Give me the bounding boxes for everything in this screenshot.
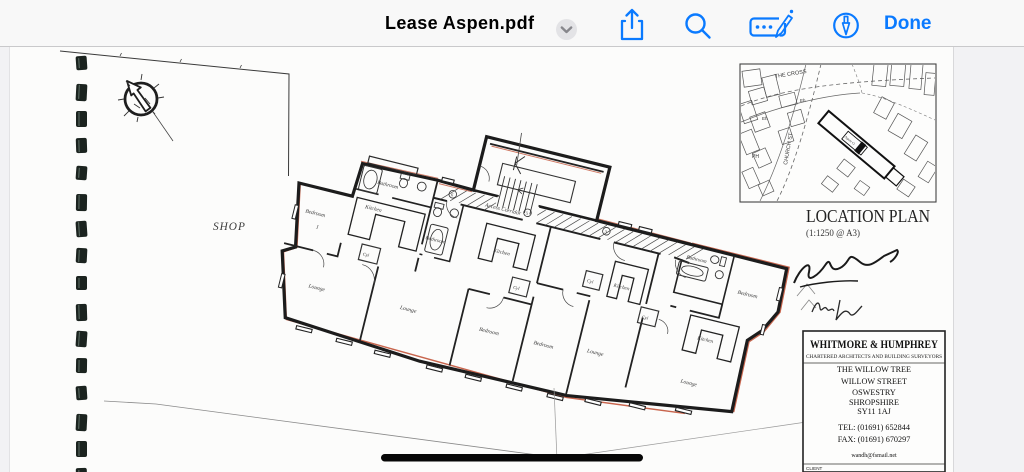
svg-text:wandh@fsmail.net: wandh@fsmail.net	[851, 452, 897, 459]
svg-text:Kitchen: Kitchen	[612, 282, 630, 292]
svg-text:WILLOW STREET: WILLOW STREET	[841, 377, 907, 386]
svg-text:WHITMORE & HUMPHREY: WHITMORE & HUMPHREY	[810, 339, 939, 351]
svg-text:SHOP: SHOP	[213, 221, 246, 233]
svg-text:Cyl: Cyl	[513, 285, 521, 292]
svg-text:Eh: Eh	[800, 98, 806, 103]
svg-text:(1:1250 @ A3): (1:1250 @ A3)	[806, 228, 860, 239]
svg-text:Cyl: Cyl	[586, 278, 594, 285]
svg-text:THE WILLOW TREE: THE WILLOW TREE	[837, 365, 911, 374]
svg-text:Bedroom: Bedroom	[737, 290, 758, 301]
svg-text:PH: PH	[752, 154, 759, 160]
svg-text:OSWESTRY: OSWESTRY	[852, 388, 896, 397]
svg-text:SY11 1AJ: SY11 1AJ	[857, 407, 891, 416]
svg-text:Kitchen: Kitchen	[363, 204, 382, 214]
svg-text:3: 3	[604, 229, 608, 235]
svg-text:Lounge: Lounge	[307, 283, 326, 293]
svg-text:Bedroom: Bedroom	[533, 340, 554, 351]
svg-text:Lounge: Lounge	[585, 348, 604, 358]
svg-text:SHROPSHIRE: SHROPSHIRE	[849, 398, 899, 407]
svg-text:Cyl: Cyl	[362, 251, 370, 258]
svg-text:FAX: (01691) 670297: FAX: (01691) 670297	[838, 435, 911, 444]
svg-text:LOCATION PLAN: LOCATION PLAN	[806, 206, 930, 226]
svg-text:CHARTERED ARCHITECTS AND BUILD: CHARTERED ARCHITECTS AND BUILDING SURVEY…	[806, 354, 942, 360]
svg-text:CLIENT: CLIENT	[806, 466, 823, 471]
svg-text:Bedroom: Bedroom	[305, 208, 326, 219]
svg-text:1: 1	[315, 224, 319, 231]
svg-text:6: 6	[451, 192, 455, 198]
svg-text:Bedroom: Bedroom	[478, 327, 499, 338]
svg-text:TEL: (01691) 652844: TEL: (01691) 652844	[838, 423, 910, 432]
svg-text:Lounge: Lounge	[679, 378, 698, 388]
svg-text:Kitchen: Kitchen	[492, 248, 511, 258]
svg-text:Eh: Eh	[762, 116, 768, 121]
svg-text:Lounge: Lounge	[398, 305, 417, 315]
